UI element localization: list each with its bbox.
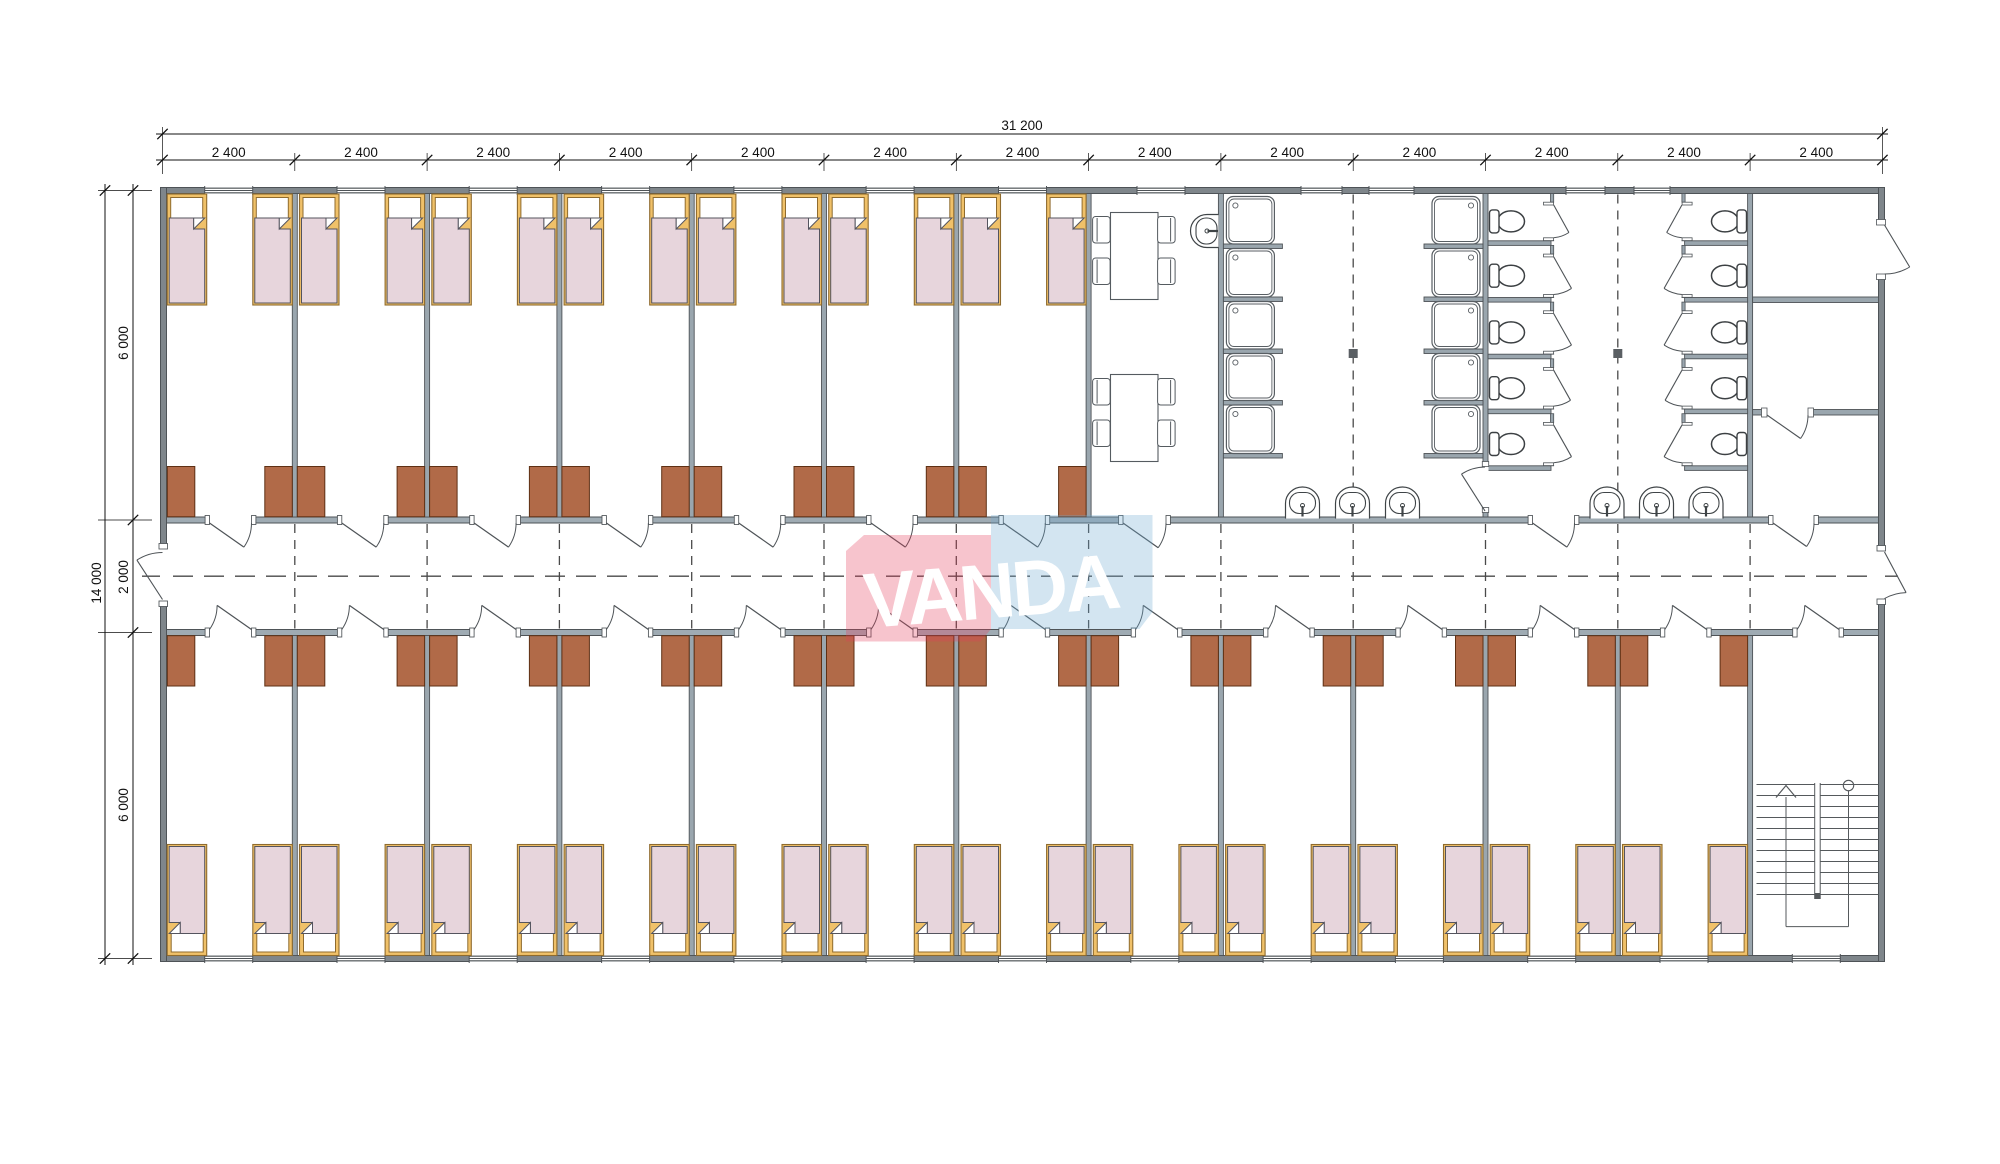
svg-text:6 000: 6 000 — [116, 788, 131, 822]
svg-text:2 400: 2 400 — [1403, 145, 1437, 160]
svg-text:6 000: 6 000 — [116, 326, 131, 360]
svg-text:2 400: 2 400 — [1535, 145, 1569, 160]
svg-text:2 400: 2 400 — [741, 145, 775, 160]
svg-text:2 000: 2 000 — [116, 560, 131, 594]
svg-text:14 000: 14 000 — [89, 562, 104, 603]
svg-text:2 400: 2 400 — [344, 145, 378, 160]
svg-text:2 400: 2 400 — [212, 145, 246, 160]
svg-text:2 400: 2 400 — [1667, 145, 1701, 160]
svg-text:2 400: 2 400 — [476, 145, 510, 160]
svg-text:2 400: 2 400 — [1006, 145, 1040, 160]
svg-text:2 400: 2 400 — [1270, 145, 1304, 160]
svg-text:2 400: 2 400 — [609, 145, 643, 160]
svg-text:31 200: 31 200 — [1001, 118, 1042, 133]
svg-text:2 400: 2 400 — [1799, 145, 1833, 160]
svg-text:2 400: 2 400 — [873, 145, 907, 160]
svg-text:2 400: 2 400 — [1138, 145, 1172, 160]
